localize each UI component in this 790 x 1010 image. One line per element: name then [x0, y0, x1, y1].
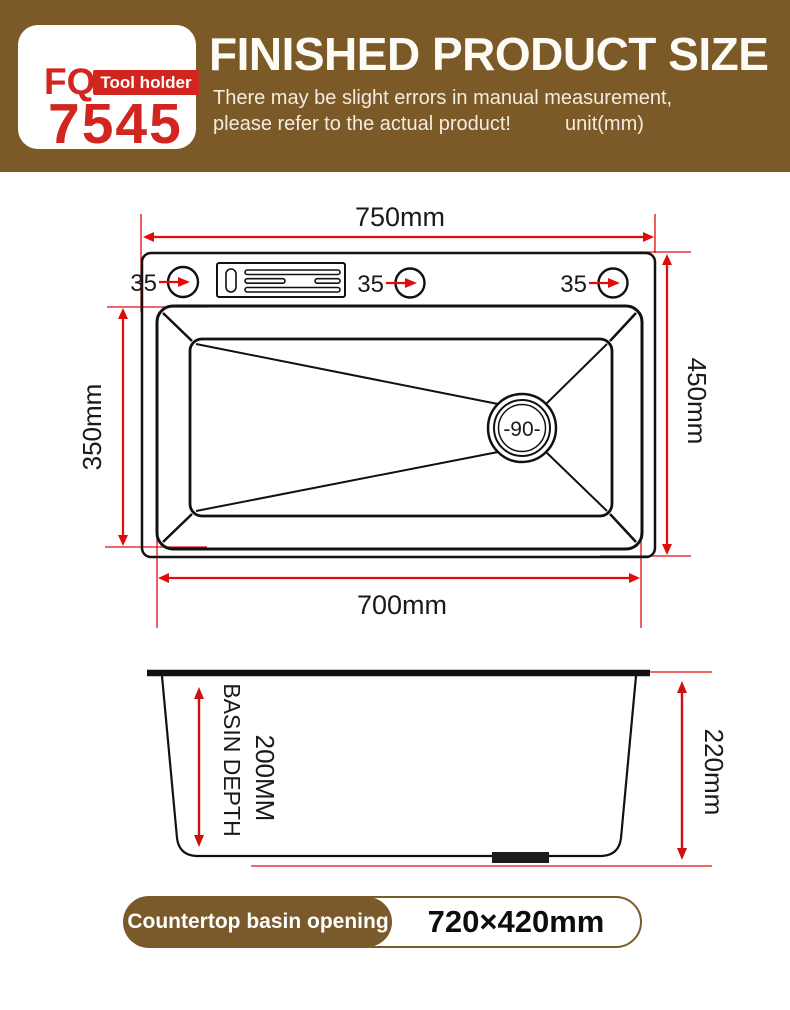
- tray-knife-slot: [226, 269, 236, 292]
- corner-creases: [163, 313, 636, 542]
- hole-label-right: 35: [560, 271, 587, 298]
- countertop-opening-size: 720×420mm: [392, 898, 640, 946]
- countertop-opening-pill: Countertop basin opening 720×420mm: [123, 896, 642, 948]
- tool-holder-tray: [217, 263, 345, 297]
- basin-depth-label-line1: BASIN DEPTH: [219, 683, 245, 836]
- dim-label-bottom-width: 700mm: [357, 590, 447, 620]
- sink-dimension-diagram: 750mm 700mm 350mm 450mm 35 35 35 -90- BA…: [0, 0, 790, 1010]
- extension-lines: [105, 214, 712, 866]
- sink-top-view: [142, 253, 655, 557]
- countertop-opening-badge: Countertop basin opening: [124, 897, 392, 947]
- dim-label-right-height: 450mm: [682, 358, 712, 445]
- dim-label-top-width: 750mm: [355, 202, 445, 232]
- drain-stub: [492, 852, 549, 863]
- overall-height-label: 220mm: [699, 729, 729, 816]
- dim-label-left-height: 350mm: [77, 384, 107, 471]
- product-size-page: FQ Tool holder 7545 FINISHED PRODUCT SIZ…: [0, 0, 790, 1010]
- basin-opening-outline: [157, 306, 642, 549]
- sink-rim-outline: [142, 253, 655, 557]
- hole-label-middle: 35: [357, 271, 384, 298]
- hole-label-left: 35: [130, 270, 157, 297]
- drain-diameter-label: -90-: [503, 418, 540, 441]
- basin-depth-label-line2: 200MM: [250, 735, 280, 822]
